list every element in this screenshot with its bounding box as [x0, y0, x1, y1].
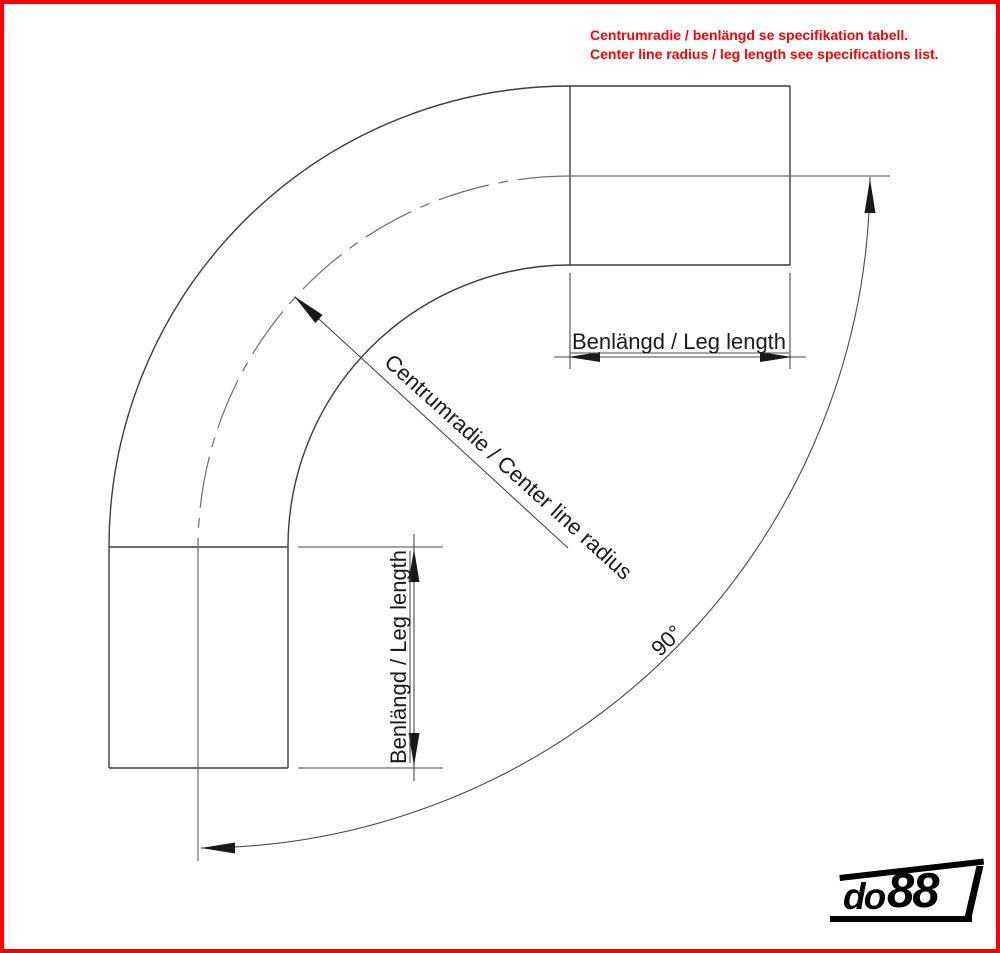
- logo-text-do: do: [843, 876, 884, 918]
- angle-dimension-arc: [201, 177, 870, 848]
- arrow-left-icon: [201, 843, 235, 854]
- arrow-up-icon: [865, 179, 876, 213]
- do88-logo: do 88: [830, 859, 996, 925]
- pipe-bend-drawing: 90° Benlängd / Leg length Benlängd / Leg…: [0, 0, 1000, 953]
- angle-label: 90°: [646, 620, 687, 661]
- drawing-frame: Centrumradie / benlängd se specifikation…: [0, 0, 1000, 953]
- center-line-radius-label: Centrumradie / Center line radius: [380, 349, 638, 584]
- pipe-outer-arc: [109, 86, 570, 547]
- radius-dimension-line: [296, 298, 568, 548]
- logo-text-88: 88: [887, 863, 938, 919]
- arrow-up-left-icon: [294, 296, 323, 323]
- logo-text: do 88: [843, 859, 973, 921]
- top-leg-length-label: Benlängd / Leg length: [572, 329, 786, 354]
- left-leg-length-label: Benlängd / Leg length: [386, 550, 411, 764]
